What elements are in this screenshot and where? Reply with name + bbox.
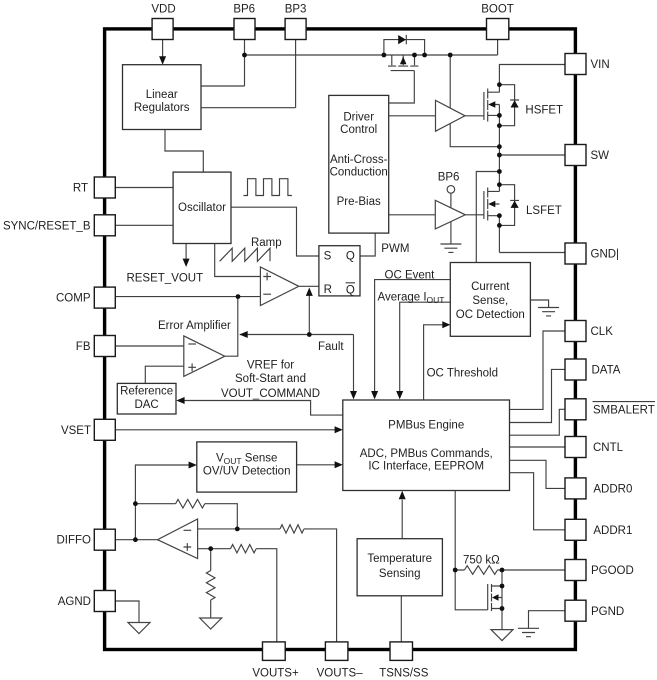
- svg-text:Sense,: Sense,: [472, 295, 508, 307]
- svg-text:DIFFO: DIFFO: [57, 535, 92, 547]
- svg-text:R: R: [324, 284, 332, 296]
- svg-text:SMBALERT: SMBALERT: [593, 405, 655, 417]
- svg-text:VOUT_COMMAND: VOUT_COMMAND: [221, 388, 320, 400]
- svg-text:Regulators: Regulators: [134, 102, 190, 114]
- svg-text:SYNC/RESET_B: SYNC/RESET_B: [3, 220, 91, 232]
- svg-text:OC Event: OC Event: [385, 270, 436, 282]
- svg-text:BP3: BP3: [285, 4, 307, 16]
- svg-text:OC Detection: OC Detection: [456, 309, 525, 321]
- svg-text:Conduction: Conduction: [330, 167, 388, 179]
- svg-text:Oscillator: Oscillator: [178, 202, 226, 214]
- svg-text:VSET: VSET: [61, 425, 91, 437]
- svg-text:OV/UV Detection: OV/UV Detection: [203, 465, 291, 477]
- svg-text:VIN: VIN: [591, 59, 610, 71]
- svg-text:ADC, PMBus Commands,: ADC, PMBus Commands,: [360, 448, 493, 460]
- svg-text:VDD: VDD: [151, 4, 175, 16]
- svg-text:BOOT: BOOT: [481, 4, 514, 16]
- svg-text:S: S: [324, 251, 332, 263]
- svg-text:Temperature: Temperature: [367, 553, 432, 565]
- svg-text:Driver: Driver: [343, 112, 374, 124]
- svg-text:HSFET: HSFET: [525, 104, 563, 116]
- svg-text:PGND: PGND: [591, 606, 624, 618]
- svg-text:DAC: DAC: [134, 399, 158, 411]
- svg-text:SW: SW: [591, 150, 610, 162]
- svg-text:BP6: BP6: [438, 171, 460, 183]
- svg-text:Sensing: Sensing: [379, 568, 421, 580]
- svg-text:Q: Q: [346, 251, 355, 263]
- svg-text:Ramp: Ramp: [251, 237, 282, 249]
- svg-text:Pre-Bias: Pre-Bias: [337, 196, 381, 208]
- svg-text:AGND: AGND: [58, 596, 91, 608]
- svg-text:VREF for: VREF for: [247, 359, 294, 371]
- svg-text:CLK: CLK: [591, 326, 614, 338]
- svg-text:GND|: GND|: [591, 249, 620, 261]
- svg-text:Reference: Reference: [120, 385, 173, 397]
- svg-text:Error Amplifier: Error Amplifier: [158, 320, 231, 332]
- svg-text:FB: FB: [76, 341, 91, 353]
- svg-text:OC Threshold: OC Threshold: [427, 368, 498, 380]
- svg-text:IC Interface, EEPROM: IC Interface, EEPROM: [368, 460, 484, 472]
- svg-text:Anti-Cross-: Anti-Cross-: [330, 154, 388, 166]
- svg-text:Fault: Fault: [318, 341, 344, 353]
- svg-text:Control: Control: [340, 124, 377, 136]
- svg-text:PMBus Engine: PMBus Engine: [388, 420, 464, 432]
- svg-text:Linear: Linear: [146, 89, 178, 101]
- svg-text:Soft-Start and: Soft-Start and: [235, 373, 306, 385]
- svg-text:ADDR0: ADDR0: [593, 484, 632, 496]
- svg-text:LSFET: LSFET: [526, 205, 562, 217]
- svg-text:Q: Q: [346, 284, 355, 296]
- svg-text:RESET_VOUT: RESET_VOUT: [126, 272, 203, 284]
- svg-text:PGOOD: PGOOD: [591, 565, 634, 577]
- svg-text:750 kΩ: 750 kΩ: [463, 554, 500, 566]
- svg-text:VOUTS–: VOUTS–: [317, 667, 364, 679]
- svg-text:TSNS/SS: TSNS/SS: [379, 667, 429, 679]
- svg-text:RT: RT: [73, 183, 88, 195]
- svg-text:ADDR1: ADDR1: [593, 525, 632, 537]
- svg-text:PWM: PWM: [381, 243, 409, 255]
- svg-text:Current: Current: [471, 281, 510, 293]
- svg-text:CNTL: CNTL: [593, 442, 624, 454]
- svg-text:DATA: DATA: [592, 365, 621, 377]
- svg-text:VOUTS+: VOUTS+: [252, 667, 299, 679]
- svg-text:BP6: BP6: [233, 4, 255, 16]
- svg-text:COMP: COMP: [56, 293, 91, 305]
